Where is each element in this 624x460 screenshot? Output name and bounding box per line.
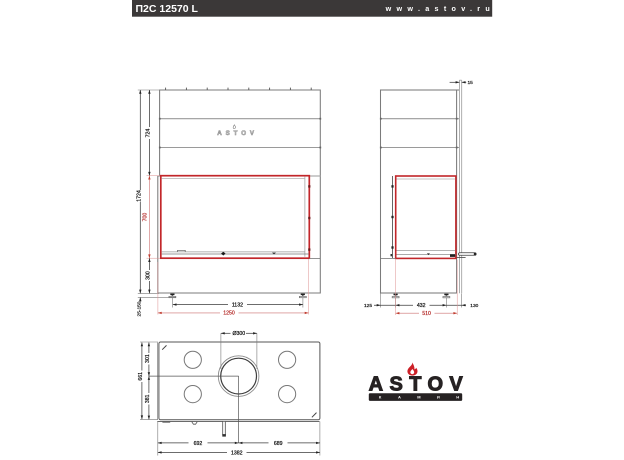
svg-text:510: 510 [422,311,431,317]
svg-text:Ø300: Ø300 [232,331,245,337]
svg-text:381: 381 [145,394,151,403]
svg-text:А: А [398,395,401,400]
svg-text:130: 130 [470,303,478,309]
svg-text:700: 700 [143,213,149,222]
svg-text:ASTOV: ASTOV [369,374,470,396]
svg-text:724: 724 [145,129,151,138]
svg-text:692: 692 [194,441,203,447]
svg-text:432: 432 [417,303,426,309]
svg-text:И: И [437,395,440,400]
svg-text:1724: 1724 [136,190,142,202]
svg-text:1250: 1250 [223,311,235,317]
svg-text:301: 301 [145,354,151,363]
svg-text:1132: 1132 [232,302,243,308]
svg-text:661: 661 [138,372,144,381]
svg-text:ASTOV: ASTOV [217,130,258,137]
svg-text:1382: 1382 [231,450,243,456]
svg-text:П2С 12570 L: П2С 12570 L [136,3,199,15]
svg-text:25-150: 25-150 [137,301,143,316]
svg-text:Н: Н [456,395,459,400]
svg-text:689: 689 [274,441,283,447]
svg-text:15: 15 [468,80,474,86]
svg-text:www.astov.ru: www.astov.ru [385,4,496,13]
svg-text:125: 125 [364,303,372,309]
svg-text:300: 300 [145,271,151,280]
